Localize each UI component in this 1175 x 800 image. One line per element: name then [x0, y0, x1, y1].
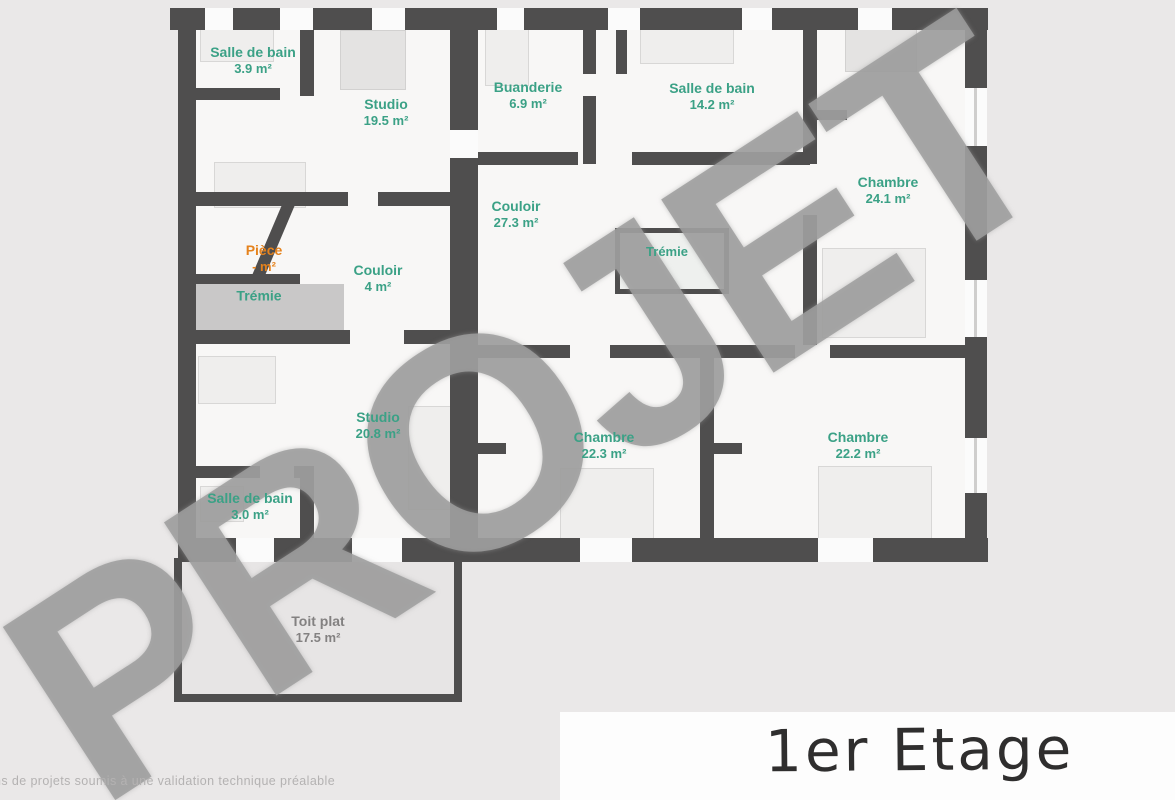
window: [497, 8, 524, 30]
room-label-tremie-center: Trémie: [646, 244, 688, 260]
wall-piece-bottom: [196, 274, 300, 284]
wall-sdb-nw-right: [300, 22, 314, 96]
wall-chambres-top-c: [830, 345, 965, 358]
room-label-studio-nw: Studio 19.5 m²: [364, 96, 409, 128]
bed-se: [818, 466, 932, 542]
sofa-sw: [198, 356, 276, 404]
room-label-tremie-west: Trémie: [236, 288, 281, 305]
wall-chambre-ne-left-b: [803, 215, 817, 345]
window-glazing: [974, 88, 977, 146]
wall-sdb-nw-bottom: [196, 88, 280, 100]
room-label-salle-de-bain-nw: Salle de bain 3.9 m²: [210, 44, 296, 76]
room-label-couloir-west: Couloir 4 m²: [354, 262, 403, 294]
room-label-salle-de-bain-n: Salle de bain 14.2 m²: [669, 80, 755, 112]
wall-chambre-s-stub: [460, 443, 506, 454]
floor-title: 1er Etage: [765, 715, 1075, 786]
vanity-sdb-n: [640, 26, 734, 64]
wall-sdb-sw-right: [300, 466, 314, 542]
room-label-chambre-s: Chambre 22.3 m²: [574, 429, 635, 461]
bed-sw: [408, 406, 452, 510]
window: [280, 8, 313, 30]
wall-left: [178, 8, 196, 558]
window: [205, 8, 233, 30]
toit-plat-wall-right: [454, 558, 462, 702]
disclaimer-text: ns de projets soumis à une validation te…: [0, 774, 335, 788]
wall-buanderie-right-b: [583, 96, 596, 164]
room-label-buanderie: Buanderie 6.9 m²: [494, 79, 562, 111]
closet-ne: [845, 26, 917, 72]
wall-toprooms-bottom-b: [632, 152, 810, 165]
wall-midband-bottom-a: [178, 330, 350, 344]
wall-center-vertical: [450, 8, 478, 558]
wall-chambre-ne-left-a: [803, 22, 817, 164]
window: [742, 8, 772, 30]
room-label-chambre-ne: Chambre 24.1 m²: [858, 174, 919, 206]
room-label-studio-sw: Studio 20.8 m²: [356, 409, 401, 441]
window: [372, 8, 405, 30]
wall-midband-bottom-b: [404, 330, 470, 344]
bed-s: [560, 468, 654, 540]
room-label-couloir-main: Couloir 27.3 m²: [492, 198, 541, 230]
wardrobe-nw: [340, 30, 406, 90]
wall-chambre-se-stub: [714, 443, 742, 454]
room-label-piece: Pièce - m²: [246, 242, 283, 274]
room-label-salle-de-bain-sw: Salle de bain 3.0 m²: [207, 490, 293, 522]
wall-buanderie-right-a: [583, 22, 596, 74]
room-label-chambre-se: Chambre 22.2 m²: [828, 429, 889, 461]
window-glazing: [974, 438, 977, 493]
washer-buanderie: [485, 26, 529, 86]
room-label-toit-plat: Toit plat 17.5 m²: [291, 613, 344, 645]
tremie-center-box: [615, 228, 729, 294]
door-opening: [352, 538, 402, 562]
wall-between-chambres: [700, 352, 714, 542]
window: [858, 8, 892, 30]
toit-plat-wall-bottom: [174, 694, 462, 702]
wall-chambres-top-a: [450, 345, 570, 358]
bed-ne: [822, 248, 926, 338]
window-glazing: [974, 280, 977, 337]
wall-sdb-sw-top-a: [196, 466, 260, 478]
window: [608, 8, 640, 30]
window: [818, 538, 873, 562]
wall-wc-stub: [813, 110, 847, 120]
floor-plan-page: PROJET Salle de bain 3.9 m² Studio 19.5 …: [0, 0, 1175, 800]
toit-plat-wall-left: [174, 558, 182, 700]
wall-midband-top-b: [378, 192, 472, 206]
door-opening: [450, 130, 478, 158]
floor-title-panel: 1er Etage: [560, 712, 1175, 800]
window: [580, 538, 632, 562]
wall-midband-top-a: [178, 192, 348, 206]
window: [236, 538, 274, 562]
